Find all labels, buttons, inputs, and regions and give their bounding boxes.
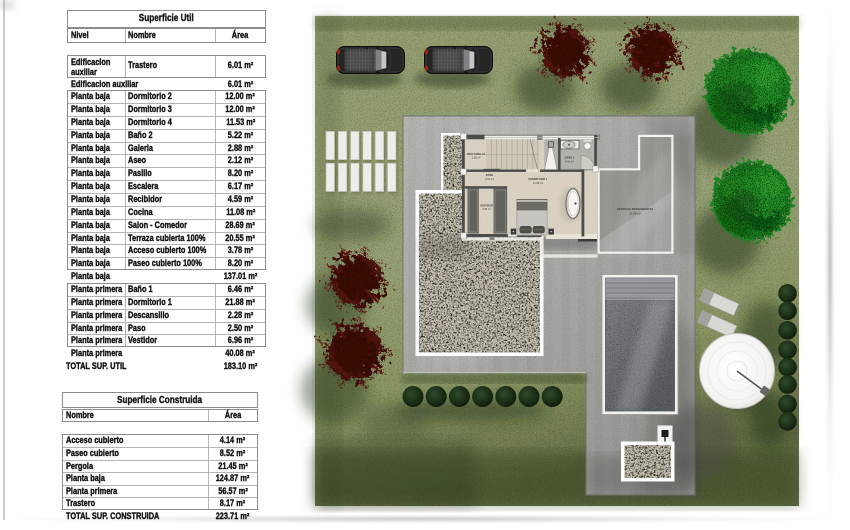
svg-text:VESTIDOR: VESTIDOR <box>480 203 493 207</box>
svg-text:PASO: PASO <box>486 173 493 177</box>
svg-text:4.46 m²: 4.46 m² <box>565 159 574 163</box>
svg-text:21.88 m²: 21.88 m² <box>533 181 543 185</box>
svg-text:DESCANSILLO: DESCANSILLO <box>467 152 486 156</box>
svg-text:32.06 m²: 32.06 m² <box>629 212 641 216</box>
svg-text:4.96 m²: 4.96 m² <box>482 207 491 211</box>
svg-text:TERRAZA DESCUBIERTA: TERRAZA DESCUBIERTA <box>617 207 654 211</box>
svg-text:2.28 m²: 2.28 m² <box>472 156 481 160</box>
svg-text:DORMITORIO 1: DORMITORIO 1 <box>529 177 549 181</box>
svg-text:2.50 m²: 2.50 m² <box>485 177 494 181</box>
